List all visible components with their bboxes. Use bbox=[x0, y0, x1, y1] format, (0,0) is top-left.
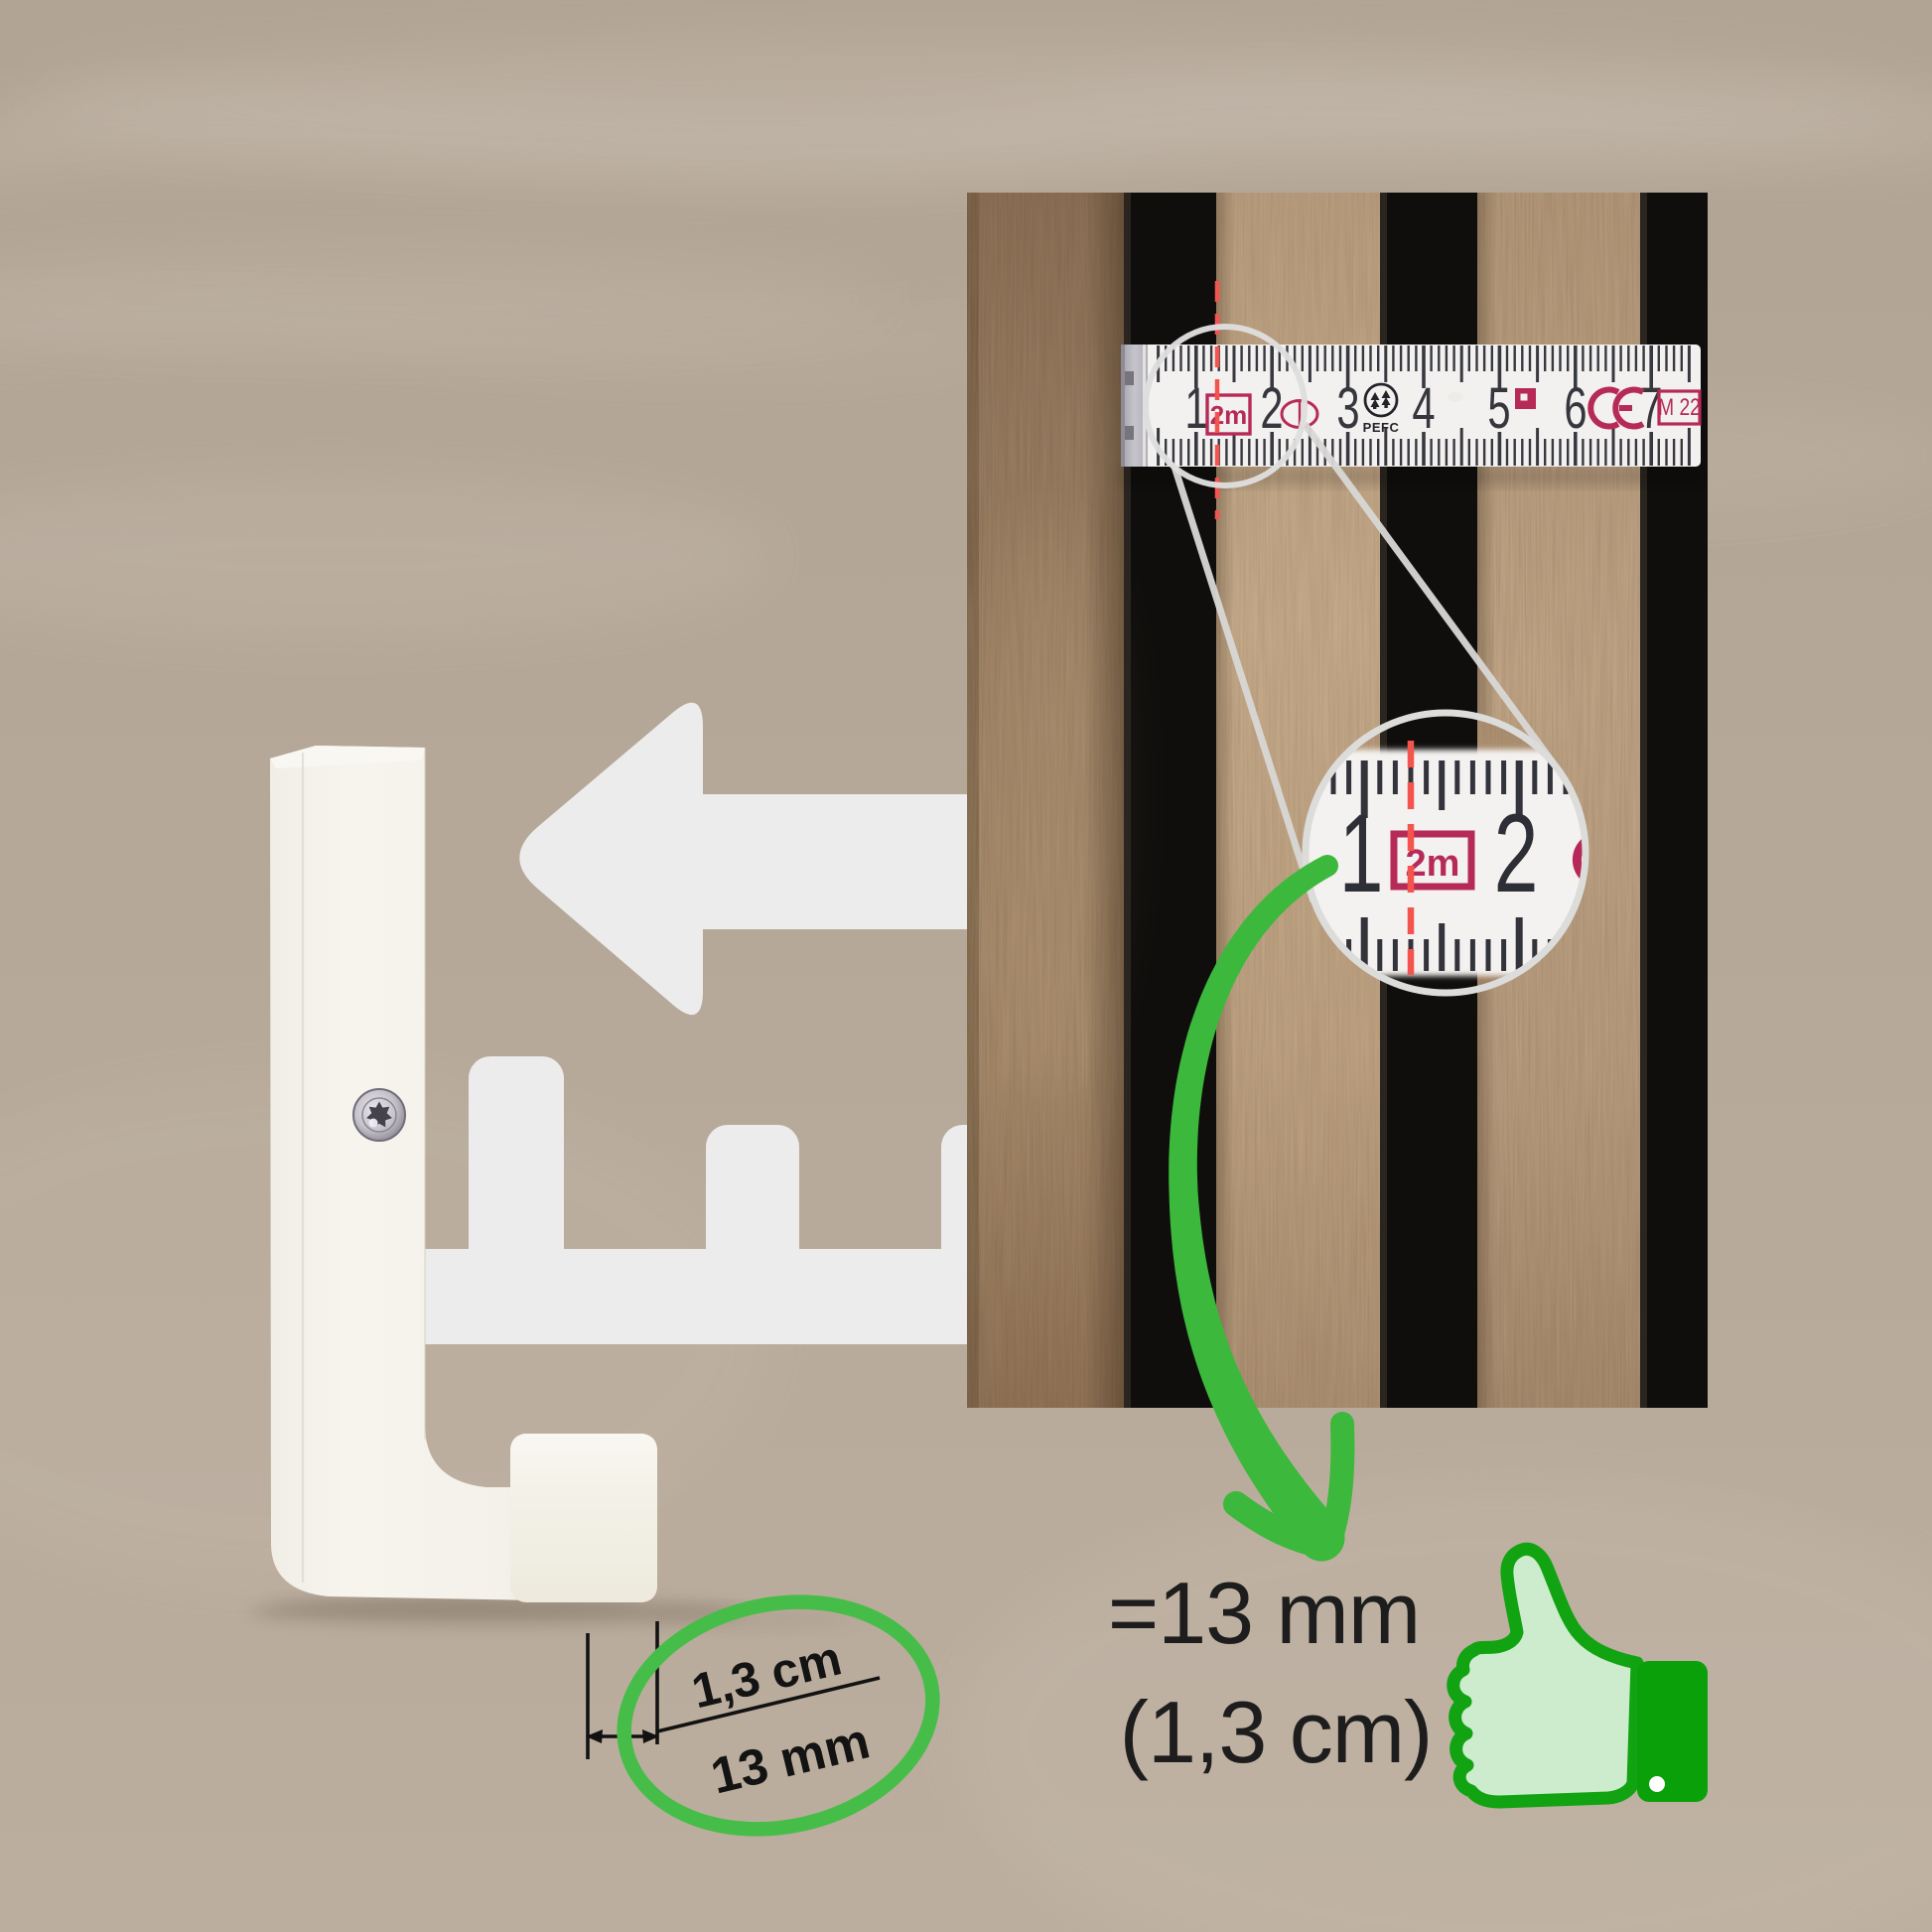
svg-text:1: 1 bbox=[1184, 375, 1207, 440]
svg-text:5: 5 bbox=[1487, 375, 1510, 440]
svg-text:4: 4 bbox=[1412, 375, 1435, 440]
svg-text:=13 mm: =13 mm bbox=[1108, 1564, 1420, 1662]
svg-text:3: 3 bbox=[1336, 375, 1359, 440]
svg-text:2: 2 bbox=[1260, 375, 1283, 440]
svg-text:2: 2 bbox=[1494, 791, 1539, 915]
svg-text:1: 1 bbox=[1339, 791, 1384, 915]
svg-text:PEFC: PEFC bbox=[1363, 420, 1400, 435]
svg-text:6: 6 bbox=[1564, 375, 1587, 440]
svg-text:(1,3 cm): (1,3 cm) bbox=[1120, 1683, 1433, 1781]
svg-text:M 22: M 22 bbox=[1658, 393, 1701, 421]
